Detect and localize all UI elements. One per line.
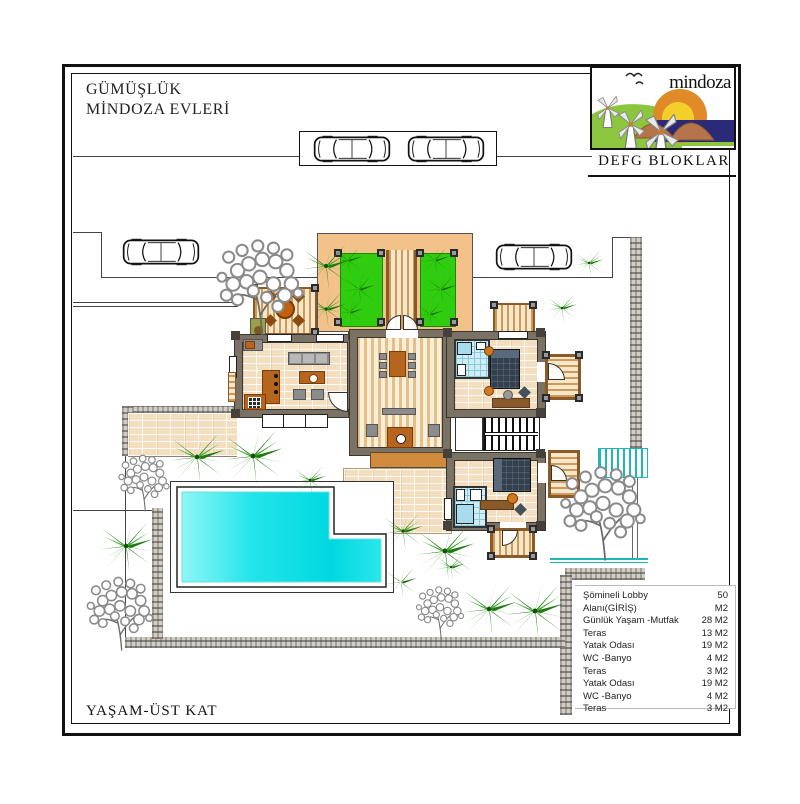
palm-tree-icon	[222, 425, 284, 487]
legend-area-value: 19 M2	[702, 640, 728, 653]
legend-room-label: Şömineli Lobby Alanı(GİRİŞ)	[583, 590, 702, 615]
pergola-post	[490, 301, 498, 309]
deciduous-tree-icon	[548, 455, 658, 565]
dining-chair	[408, 362, 416, 369]
stove-burner	[274, 374, 278, 378]
company-logo: mindoza	[590, 66, 736, 150]
lobby-south-deck	[370, 452, 447, 468]
sofa-cushion	[316, 354, 327, 363]
toilet	[456, 489, 465, 501]
lobby-armchair	[428, 424, 440, 437]
bed-pillow	[491, 350, 519, 358]
garden-wall-south	[125, 637, 565, 648]
oven	[248, 397, 261, 408]
parking-bay-line	[612, 237, 632, 238]
toilet	[457, 364, 466, 376]
palm-tree-icon	[384, 565, 418, 599]
legend-area-value: 3 M2	[707, 666, 728, 679]
armchair	[293, 389, 306, 400]
swimming-pool	[176, 486, 390, 589]
path-wall-north	[122, 406, 242, 413]
legend-room-label: Yatak Odası	[583, 640, 635, 653]
sofa-cushion	[303, 354, 314, 363]
floor-plan-label: YAŞAM-ÜST KAT	[86, 703, 218, 720]
palm-silhouette-icon	[416, 300, 444, 328]
logo-wordmark: mindoza	[669, 72, 731, 94]
wall-corner-stone	[443, 328, 452, 337]
legend-row: Teras3 M2	[575, 666, 735, 679]
legend-area-value: 3 M2	[707, 703, 728, 716]
block-label-underline	[588, 175, 736, 177]
legend-area-value: 4 M2	[707, 653, 728, 666]
legend-room-label: Teras	[583, 666, 606, 679]
stool	[507, 493, 518, 504]
pergola-post	[377, 249, 385, 257]
dining-chair	[379, 371, 387, 378]
legend-room-label: Teras	[583, 628, 606, 641]
sofa-cushion	[290, 354, 301, 363]
project-title: GÜMÜŞLÜK MİNDOZA EVLERİ	[86, 80, 230, 120]
wall-corner-stone	[536, 408, 545, 417]
kitchen-appliance	[245, 341, 255, 349]
parking-bay-line	[101, 232, 102, 278]
dining-chair	[408, 353, 416, 360]
pergola-post	[529, 301, 537, 309]
balcony-post	[542, 394, 550, 402]
palm-tree-icon	[168, 428, 226, 486]
palm-tree-icon	[504, 580, 566, 642]
legend-row: Teras13 M2	[575, 628, 735, 641]
car-icon	[494, 243, 574, 271]
terrace-post	[487, 552, 495, 560]
legend-area-value: 13 M2	[702, 628, 728, 641]
terrace-post	[529, 525, 537, 533]
balcony-opening	[538, 463, 547, 483]
parking-bay-line	[73, 232, 102, 233]
legend-area-value: 4 M2	[707, 691, 728, 704]
wall-corner-stone	[536, 449, 545, 458]
wall-corner-stone	[231, 409, 240, 418]
palm-tree-icon	[293, 463, 327, 497]
pergola-post	[377, 318, 385, 326]
deciduous-tree-icon	[70, 568, 170, 654]
wall-corner-stone	[536, 521, 545, 530]
living-room-west-deck	[228, 372, 236, 402]
legend-room-label: WC -Banyo	[583, 691, 632, 704]
legend-area-value: 50 M2	[702, 590, 728, 615]
shower	[457, 342, 472, 355]
legend-row: Şömineli Lobby Alanı(GİRİŞ)50 M2	[575, 590, 735, 615]
block-label: DEFG BLOKLAR	[592, 153, 736, 170]
legend-row: WC -Banyo4 M2	[575, 653, 735, 666]
project-title-line1: GÜMÜŞLÜK	[86, 80, 230, 100]
dining-chair	[379, 353, 387, 360]
terrace-post	[487, 525, 495, 533]
balcony-post	[575, 351, 583, 359]
legend-room-label: Günlük Yaşam -Mutfak	[583, 615, 679, 628]
legend-area-value: 28 M2	[702, 615, 728, 628]
lobby-armchair	[366, 424, 378, 437]
dining-chair	[379, 362, 387, 369]
window-mullion	[305, 415, 306, 427]
bed-pillow	[494, 459, 502, 491]
palm-tree-icon	[574, 248, 604, 278]
car-icon	[311, 135, 393, 163]
desk	[492, 398, 530, 408]
stove-burner	[274, 390, 278, 394]
desk-chair	[503, 390, 513, 400]
stair-rail	[485, 432, 538, 436]
nightstand	[484, 386, 494, 396]
legend-room-label: Yatak Odası	[583, 678, 635, 691]
legend-room-label: WC -Banyo	[583, 653, 632, 666]
dining-table	[389, 351, 406, 377]
stair-landing	[455, 417, 483, 451]
floor-plan-sheet: GÜMÜŞLÜK MİNDOZA EVLERİ mindoza DEFG BLO…	[0, 0, 800, 804]
parking-bay-line	[612, 237, 613, 278]
pergola-post	[450, 249, 458, 257]
legend-row: Yatak Odası19 M2	[575, 640, 735, 653]
stove-burner	[274, 382, 278, 386]
bedroom1-window	[498, 331, 528, 339]
car-icon	[405, 135, 487, 163]
palm-tree-icon	[98, 518, 154, 574]
armchair	[311, 389, 324, 400]
legend-row: WC -Banyo4 M2	[575, 691, 735, 704]
legend-row: Günlük Yaşam -Mutfak28 M2	[575, 615, 735, 628]
console-shelf	[382, 408, 416, 415]
legend-row: Yatak Odası19 M2	[575, 678, 735, 691]
balcony-post	[575, 394, 583, 402]
legend-row: Teras3 M2	[575, 703, 735, 716]
palm-silhouette-icon	[420, 245, 450, 275]
bedroom2-window	[444, 498, 452, 520]
wall-corner-stone	[443, 449, 452, 458]
palm-tree-icon	[436, 552, 466, 582]
table-decor	[309, 374, 318, 383]
area-legend: Şömineli Lobby Alanı(GİRİŞ)50 M2 Günlük …	[575, 585, 736, 709]
balcony-post	[542, 351, 550, 359]
dining-chair	[408, 371, 416, 378]
wall-corner-stone	[536, 328, 545, 337]
deciduous-tree-icon	[190, 228, 330, 340]
garden-wall-east	[630, 237, 642, 448]
pergola-post	[450, 318, 458, 326]
nightstand	[484, 346, 494, 356]
fireplace	[396, 434, 406, 444]
legend-area-value: 19 M2	[702, 678, 728, 691]
palm-tree-icon	[546, 292, 578, 324]
entrance-opening	[386, 329, 418, 338]
garden-wall-segment	[565, 568, 645, 580]
project-title-line2: MİNDOZA EVLERİ	[86, 100, 230, 120]
terrace-post	[529, 552, 537, 560]
legend-room-label: Teras	[583, 703, 606, 716]
